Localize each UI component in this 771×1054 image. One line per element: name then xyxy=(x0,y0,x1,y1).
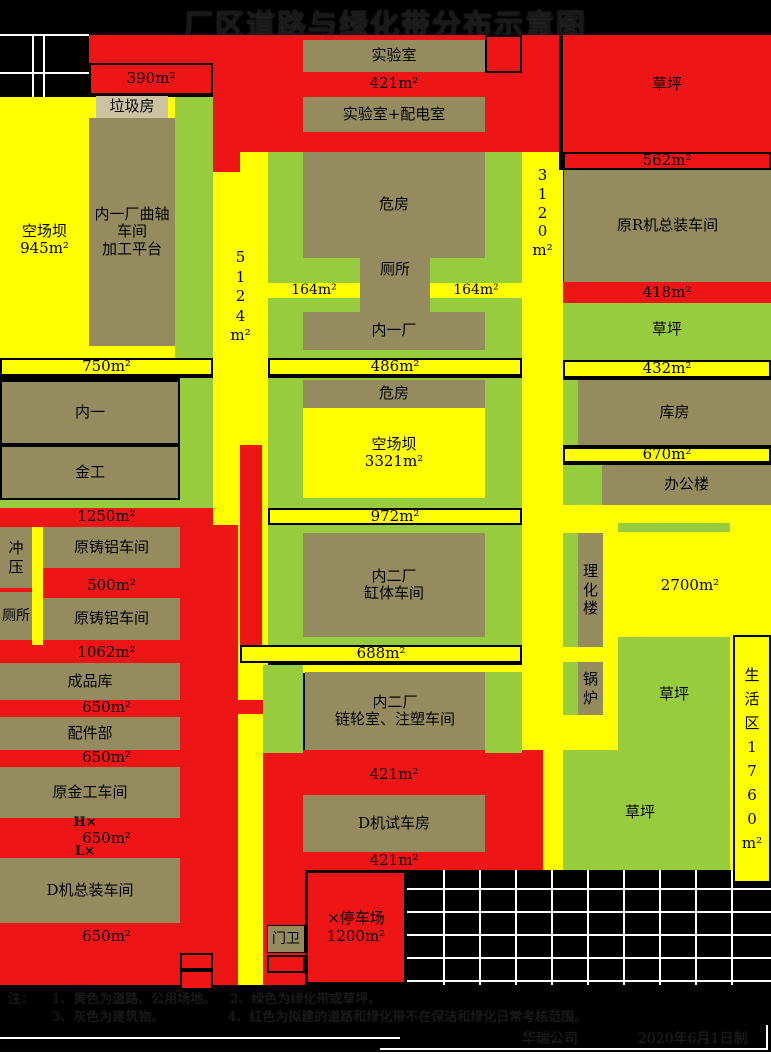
area-421-top: 421m² xyxy=(303,75,485,93)
planned-area xyxy=(520,750,543,872)
footer-line xyxy=(380,1048,768,1050)
factory-layout-map: 厂区道路与绿化带分布示意图 418m² 1250m² 390m² 750m² 4… xyxy=(0,0,771,1054)
building-toilet-1: 厕所 xyxy=(360,258,430,312)
building-r-assembly-workshop: 原R机总装车间 xyxy=(564,170,771,282)
strip-688: 688m² xyxy=(240,645,522,663)
note-item-4: 4、红色为拟建的道路和绿化带不在保洁和绿化日常考核范围。 xyxy=(228,1006,587,1025)
lawn-label: 草坪 xyxy=(618,686,730,704)
building-physchem: 理 化 楼 xyxy=(578,533,603,647)
green-belt xyxy=(563,380,578,445)
grid-line xyxy=(587,870,589,985)
building-cast-aluminum-2: 原铸铝车间 xyxy=(43,598,180,640)
area-650-c: 650m² xyxy=(0,831,213,846)
planned-crossing xyxy=(238,700,265,714)
area-421-mid: 421m² xyxy=(303,766,485,784)
road-segment xyxy=(32,527,43,645)
area-421-low: 421m² xyxy=(303,853,485,869)
strip-486: 486m² xyxy=(268,358,522,376)
building-neiyi-plant: 内一厂 xyxy=(303,312,485,350)
area-3120: 3 1 2 0 m² xyxy=(522,168,563,258)
building-sprocket-injection: 内二厂 链轮室、注塑车间 xyxy=(305,672,485,750)
strip-562: 562m² xyxy=(563,152,771,170)
planned-area xyxy=(89,35,213,63)
building-metalwork: 金工 xyxy=(0,445,180,500)
building-crankshaft-workshop: 内一厂曲轴 车间 加工平台 xyxy=(89,118,175,346)
note-item-3: 3、灰色为建筑物。 xyxy=(52,1006,164,1025)
green-belt xyxy=(180,378,213,500)
signature-date: 2020年6月1日制 xyxy=(638,1028,747,1048)
building-dilapidated-2: 危房 xyxy=(303,380,485,408)
planned-road xyxy=(240,445,262,650)
green-belt xyxy=(618,523,730,532)
building-cast-aluminum-1: 原铸铝车间 xyxy=(43,527,180,568)
note-item-2: 2、绿色为绿化带或草坪。 xyxy=(230,988,381,1007)
lawn-label: 草坪 xyxy=(563,320,771,340)
street-line xyxy=(32,35,34,97)
building-finished-goods: 成品库 xyxy=(0,663,180,700)
area-2700: 2700m² xyxy=(620,577,760,595)
grid-line xyxy=(479,870,481,985)
divider xyxy=(559,35,563,170)
green-belt xyxy=(563,662,578,715)
grid-line xyxy=(407,957,771,959)
green-belt xyxy=(263,665,303,753)
open-yard-3321: 空场坝 3321m² xyxy=(303,408,485,498)
lawn-label-red: 草坪 xyxy=(563,75,771,95)
grid-line xyxy=(695,870,697,985)
grid-line xyxy=(407,888,771,890)
mark-lx: L× xyxy=(65,846,105,858)
grid-line xyxy=(623,870,625,985)
planned-box xyxy=(267,955,305,973)
green-belt xyxy=(563,465,602,505)
grid-line xyxy=(407,980,771,982)
area-1062: 1062m² xyxy=(0,644,213,662)
green-belt xyxy=(563,533,578,647)
planned-box xyxy=(485,35,522,73)
strip-972: 972m² xyxy=(268,508,522,525)
area-5124: 5 1 2 4 m² xyxy=(213,248,268,346)
grid-line xyxy=(407,911,771,913)
building-laboratory: 实验室 xyxy=(303,40,485,72)
planned-strip-1250: 1250m² xyxy=(0,508,213,525)
planned-box xyxy=(180,953,213,970)
living-area-1760: 生 活 区 1 7 6 0 m² xyxy=(733,635,771,883)
street-line xyxy=(43,35,45,97)
area-500: 500m² xyxy=(43,577,180,595)
building-gatehouse: 门卫 xyxy=(267,925,305,953)
grid-line xyxy=(443,870,445,985)
strip-432: 432m² xyxy=(563,360,771,378)
strip-670: 670m² xyxy=(563,447,771,463)
building-neiyi: 内一 xyxy=(0,380,180,445)
building-warehouse: 库房 xyxy=(578,380,771,445)
building-parts-dept: 配件部 xyxy=(0,717,180,750)
road-164-west: 164m² xyxy=(268,283,360,298)
building-cylinder-workshop: 内二厂 缸体车间 xyxy=(303,533,485,637)
area-650-d: 650m² xyxy=(0,928,213,945)
lawn-label: 草坪 xyxy=(600,804,680,822)
street-line xyxy=(0,72,89,74)
notes-prefix: 注： xyxy=(8,988,34,1007)
building-toilet-2: 厕所 xyxy=(0,592,32,640)
building-garbage-house: 垃圾房 xyxy=(96,96,168,118)
building-office: 办公楼 xyxy=(602,465,771,505)
footer-line xyxy=(766,1025,768,1050)
area-650-b: 650m² xyxy=(0,750,213,766)
strip-750: 750m² xyxy=(0,358,213,376)
strip-390: 390m² xyxy=(89,63,213,95)
building-stamping: 冲 压 xyxy=(0,527,32,588)
area-650-a: 650m² xyxy=(0,700,213,716)
parking-lot-1200: ×停车场 1200m² xyxy=(305,870,407,985)
building-d-test-room: D机试车房 xyxy=(303,795,485,852)
footer-line xyxy=(0,1037,400,1039)
planned-road xyxy=(213,650,238,985)
grid-line xyxy=(515,870,517,985)
grid-line xyxy=(659,870,661,985)
lawn xyxy=(618,640,730,872)
building-old-metalwork: 原金工车间 xyxy=(0,767,180,818)
building-d-assembly: D机总装车间 xyxy=(0,858,180,923)
grid-line xyxy=(731,870,733,985)
building-dilapidated-1: 危房 xyxy=(303,152,485,258)
green-belt xyxy=(485,672,522,753)
open-yard-945-label: 空场坝 945m² xyxy=(0,215,89,265)
road-164-east: 164m² xyxy=(430,283,522,298)
green-belt xyxy=(175,97,213,358)
planned-strip-418: 418m² xyxy=(563,282,771,303)
note-item-1: 1、黄色为道路、公用场地。 xyxy=(52,988,216,1007)
grid-line xyxy=(407,934,771,936)
building-boiler: 锅 炉 xyxy=(578,662,603,715)
building-lab-power-room: 实验室+配电室 xyxy=(303,97,485,132)
signature-company: 华瑞公司 xyxy=(522,1028,578,1048)
planned-box xyxy=(180,970,213,990)
parking-grid xyxy=(407,870,771,985)
grid-line xyxy=(551,870,553,985)
planned-area xyxy=(213,35,240,172)
